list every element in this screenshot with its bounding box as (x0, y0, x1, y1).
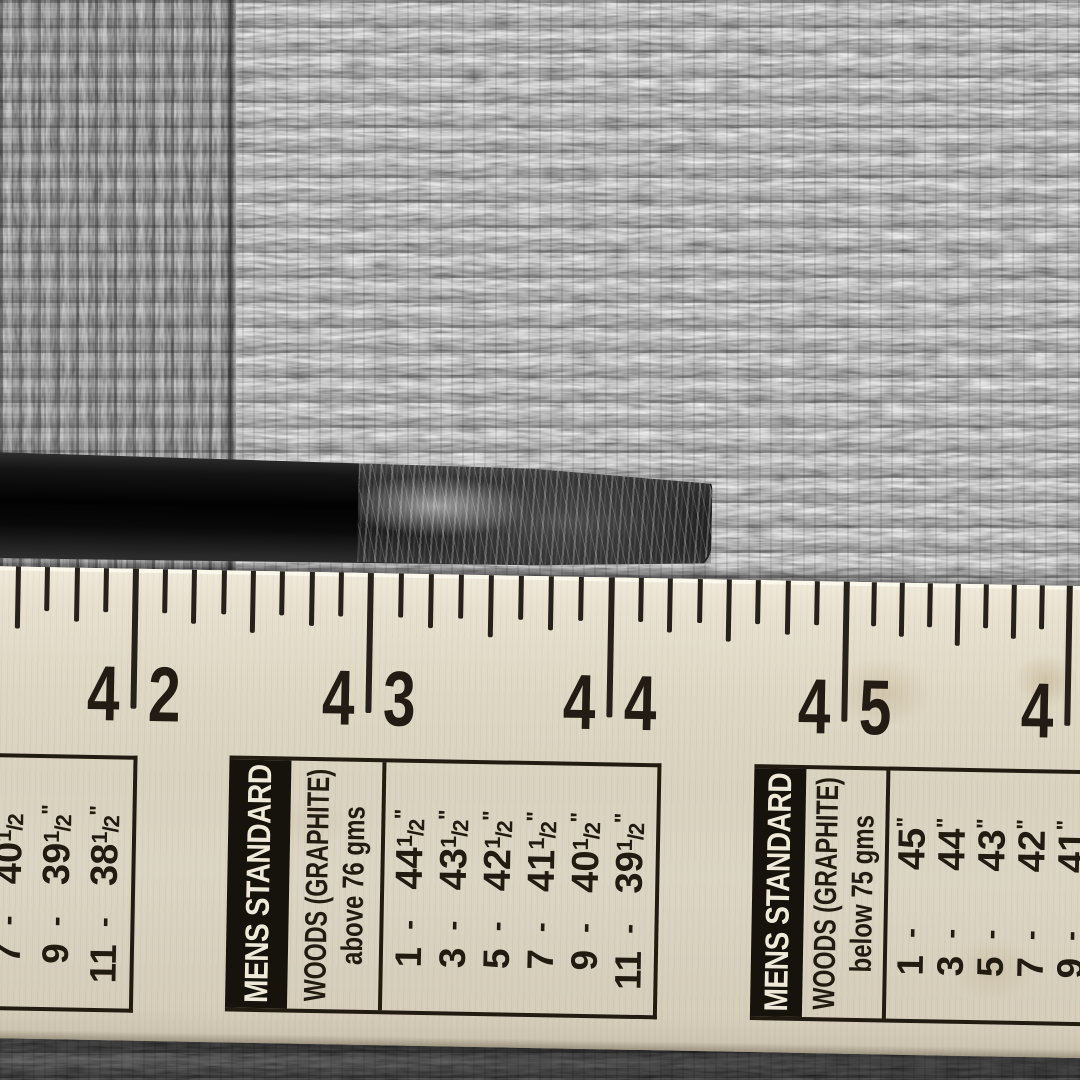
spec-table-left-partial: 7-401/2"9-391/2"11-381/2" (0, 750, 138, 1013)
table-row: 9-41" (1050, 774, 1080, 1023)
length-value: 42 (477, 848, 520, 891)
length-value: 43 (433, 848, 476, 891)
club-number-cell: 11 (607, 950, 650, 1015)
ruler-tick (578, 577, 584, 621)
fraction-denominator: 2 (536, 822, 561, 834)
separator-cell: - (568, 906, 603, 951)
fraction-slash: / (447, 832, 472, 838)
length-cell: 381/2" (83, 759, 129, 901)
ruler-tick (927, 583, 933, 627)
inch-mark: " (610, 814, 636, 823)
club-number-cell: 9 (1049, 958, 1080, 1023)
fraction-denominator: 2 (51, 815, 76, 827)
spec-table-woods-graphite-heavy: MENS STANDARDWOODS (GRAPHITE)above 76 gm… (225, 755, 662, 1019)
table-row: 11-381/2" (79, 759, 132, 1009)
separator-cell: - (612, 907, 647, 952)
table-row: 5-421/2" (474, 764, 523, 1013)
table-data: 7-401/2"9-391/2"11-381/2" (0, 757, 133, 1009)
separator-cell: - (894, 911, 929, 956)
inch-mark: " (390, 810, 416, 819)
inch-digit: 2 (147, 655, 181, 734)
table-data: 1-45"3-44"5-43"7-42"9-41" (886, 771, 1080, 1024)
length-fraction: 1/2 (491, 821, 517, 849)
length-cell: 43" (970, 772, 1016, 913)
table-row: 3-44" (930, 771, 975, 1020)
separator-cell: - (436, 903, 471, 948)
fraction-denominator: 2 (624, 824, 649, 836)
inch-digit: 4 (562, 663, 596, 742)
golf-club-ruler: 4243444546 7-401/2"9-391/2"11-381/2" MEN… (0, 566, 1080, 1058)
inch-number-45: 45 (734, 666, 955, 748)
length-fraction: 1/2 (623, 823, 649, 851)
separator-cell: - (1014, 913, 1049, 958)
fraction-numerator: 1 (436, 836, 461, 848)
length-fraction: 1/2 (50, 815, 76, 843)
ruler-tick (191, 570, 197, 624)
ruler-tick (428, 574, 434, 628)
separator-cell: - (974, 912, 1009, 957)
inch-digit: 4 (797, 667, 831, 746)
inch-digit: 4 (321, 658, 355, 737)
length-value: 43 (971, 829, 1014, 872)
table-row: 9-401/2" (562, 766, 611, 1015)
length-cell: 421/2" (476, 764, 522, 905)
length-value: 41 (1051, 830, 1080, 873)
ruler-tick (726, 580, 732, 642)
ruler-tick (814, 581, 820, 625)
table-banner: MENS STANDARD (225, 759, 292, 1008)
inch-mark: " (434, 811, 460, 820)
ruler-tick (1039, 585, 1045, 629)
club-number-cell: 5 (969, 956, 1012, 1021)
fraction-numerator: 1 (39, 831, 64, 843)
length-cell: 42" (1010, 773, 1056, 914)
ruler-tick (309, 572, 315, 626)
fraction-numerator: 1 (392, 836, 417, 848)
fraction-slash: / (50, 826, 75, 832)
ruler-tick (899, 583, 905, 637)
ruler-tick (103, 568, 109, 612)
fraction-slash: / (2, 825, 27, 831)
length-cell: 401/2" (0, 757, 33, 899)
fraction-numerator: 1 (524, 838, 549, 850)
inch-mark: " (522, 813, 548, 822)
separator-cell: - (934, 911, 969, 956)
club-number-cell: 3 (929, 955, 972, 1020)
inch-mark: " (892, 819, 918, 828)
inch-mark: " (37, 806, 63, 815)
table-banner-label: MENS STANDARD (757, 773, 799, 1012)
inch-digit: 3 (382, 659, 416, 738)
photo-golf-shaft-on-ruler: 4243444546 7-401/2"9-391/2"11-381/2" MEN… (0, 0, 1080, 1080)
inch-digit: 4 (623, 664, 657, 743)
club-number-cell: 7 (1009, 957, 1052, 1022)
ruler-tick (955, 584, 961, 646)
fraction-denominator: 2 (99, 816, 124, 828)
length-value: 39 (36, 842, 79, 885)
length-value: 40 (0, 842, 31, 885)
ruler-tick (697, 579, 703, 623)
fraction-denominator: 2 (580, 823, 605, 835)
inch-number-42: 42 (23, 653, 244, 735)
table-row: 1-45" (890, 771, 935, 1020)
length-value: 45 (891, 827, 934, 870)
separator-cell: - (0, 898, 26, 943)
table-header-title: WOODS (GRAPHITE) (806, 777, 846, 1010)
length-fraction: 1/2 (447, 820, 473, 848)
fraction-numerator: 1 (568, 839, 593, 851)
table-row: 7-411/2" (518, 765, 567, 1014)
ruler-tick (488, 575, 494, 637)
length-cell: 391/2" (608, 766, 654, 907)
ruler-tick (1011, 585, 1017, 639)
length-cell: 391/2" (35, 758, 81, 900)
inch-number-46: 46 (957, 670, 1080, 752)
ruler-tick (338, 572, 344, 616)
ruler-tick (458, 575, 464, 619)
table-row: 9-391/2" (31, 758, 84, 1008)
inch-mark: " (85, 807, 111, 816)
ruler-tick (45, 567, 51, 611)
inch-mark: " (566, 814, 592, 823)
table-row: 7-401/2" (0, 757, 35, 1007)
table-header: WOODS (GRAPHITE)above 76 gms (287, 761, 387, 1011)
inch-number-43: 43 (258, 657, 479, 739)
ruler-tick (667, 578, 673, 632)
ruler-tick (280, 571, 286, 615)
table-header: WOODS (GRAPHITE)below 75 gms (802, 769, 891, 1018)
spec-table-woods-graphite-light: MENS STANDARDWOODS (GRAPHITE)below 75 gm… (750, 764, 1080, 1028)
length-cell: 401/2" (564, 766, 610, 907)
club-number-cell: 11 (82, 944, 125, 1009)
length-fraction: 1/2 (98, 816, 124, 844)
club-number-cell: 9 (34, 943, 77, 1008)
ruler-tick (548, 576, 554, 630)
length-value: 44 (389, 847, 432, 890)
ruler-tick (398, 574, 404, 618)
fraction-denominator: 2 (448, 820, 473, 832)
length-cell: 431/2" (432, 763, 478, 904)
length-fraction: 1/2 (2, 814, 28, 842)
ruler-tick (74, 568, 80, 622)
fraction-slash: / (98, 827, 123, 833)
length-cell: 441/2" (388, 762, 434, 903)
table-header-subtitle: above 76 gms (335, 806, 372, 965)
table-banner: MENS STANDARD (750, 768, 807, 1017)
length-value: 39 (609, 851, 652, 894)
separator-cell: - (392, 902, 427, 947)
ruler-tick (518, 576, 524, 620)
fraction-slash: / (535, 833, 560, 839)
length-value: 38 (84, 843, 127, 886)
fraction-slash: / (623, 835, 648, 841)
separator-cell: - (39, 899, 74, 944)
fraction-denominator: 2 (404, 819, 429, 831)
ruler-tick (162, 569, 168, 613)
club-number-cell: 3 (431, 947, 474, 1012)
fraction-numerator: 1 (480, 837, 505, 849)
separator-cell: - (87, 900, 122, 945)
fraction-denominator: 2 (492, 821, 517, 833)
club-number-cell: 1 (889, 955, 932, 1020)
length-value: 40 (565, 850, 608, 893)
club-number-cell: 5 (475, 948, 518, 1013)
ruler-tick (638, 578, 644, 622)
fraction-slash: / (579, 834, 604, 840)
ruler-tick (871, 582, 877, 626)
table-row: 3-431/2" (430, 763, 479, 1012)
inch-number-44: 44 (499, 661, 720, 743)
club-number-cell: 7 (519, 949, 562, 1014)
inch-digit: 5 (858, 668, 892, 747)
separator-cell: - (480, 904, 515, 949)
inch-mark: " (0, 805, 15, 814)
club-number-cell: 7 (0, 942, 29, 1007)
ruler-tick (785, 581, 791, 635)
length-cell: 41" (1050, 774, 1080, 915)
club-number-cell: 1 (387, 946, 430, 1011)
fraction-numerator: 1 (0, 830, 16, 842)
length-cell: 411/2" (520, 765, 566, 906)
ruler-tick (221, 570, 227, 614)
inch-mark: " (932, 819, 958, 828)
inch-digit: 4 (86, 654, 120, 733)
table-header-subtitle: below 75 gms (845, 815, 882, 973)
inch-mark: " (1012, 821, 1038, 830)
length-value: 41 (521, 849, 564, 892)
fraction-numerator: 1 (612, 840, 637, 852)
table-row: 5-43" (970, 772, 1015, 1021)
separator-cell: - (524, 905, 559, 950)
table-header-title: WOODS (GRAPHITE) (297, 769, 337, 1002)
ruler-tick (250, 571, 256, 633)
club-number-cell: 9 (563, 950, 606, 1015)
length-value: 44 (931, 828, 974, 871)
inch-mark: " (972, 820, 998, 829)
inch-mark: " (1052, 822, 1078, 831)
table-row: 7-42" (1010, 773, 1055, 1022)
length-fraction: 1/2 (403, 819, 429, 847)
inch-mark: " (478, 812, 504, 821)
length-cell: 44" (930, 771, 976, 912)
table-banner-label: MENS STANDARD (237, 764, 279, 1003)
table-data: 1-441/2"3-431/2"5-421/2"7-411/2"9-401/2"… (382, 762, 657, 1015)
ruler-tick (15, 567, 21, 629)
separator-cell: - (1054, 914, 1080, 959)
fraction-slash: / (491, 832, 516, 838)
ruler-tick (983, 584, 989, 628)
inch-digit: 4 (1020, 671, 1054, 750)
length-value: 42 (1011, 830, 1054, 873)
length-fraction: 1/2 (535, 822, 561, 850)
fraction-denominator: 2 (3, 814, 28, 826)
length-fraction: 1/2 (579, 823, 605, 851)
fraction-numerator: 1 (87, 832, 112, 844)
table-row: 1-441/2" (386, 762, 435, 1011)
fraction-slash: / (403, 831, 428, 837)
length-cell: 45" (890, 771, 936, 912)
table-row: 11-391/2" (606, 766, 655, 1015)
ruler-tick (755, 580, 761, 624)
